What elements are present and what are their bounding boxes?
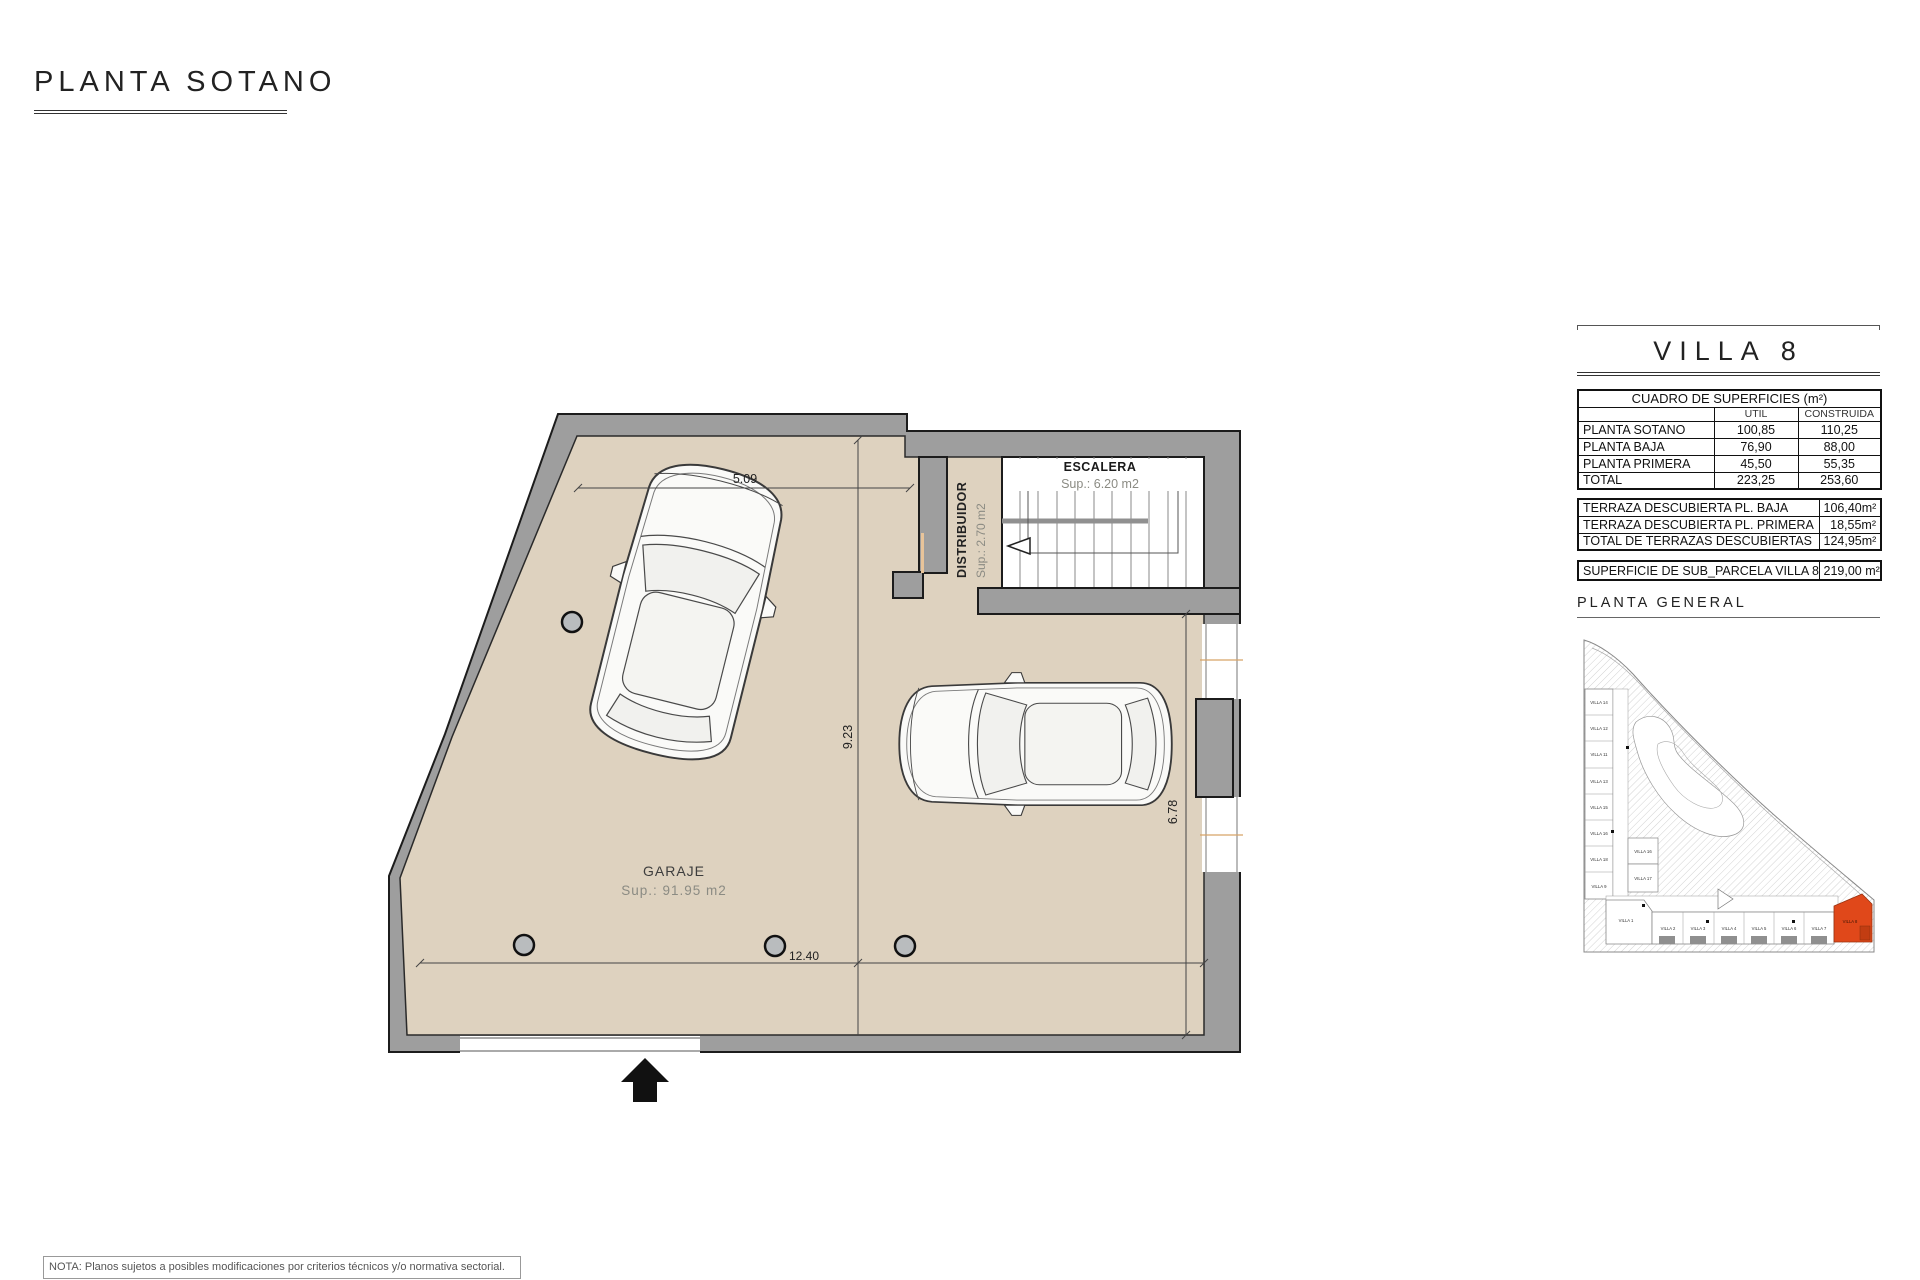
svg-text:VILLA 14: VILLA 14 [1590,700,1608,705]
left-villa-column: VILLA 14 VILLA 12 VILLA 11 VILLA 13 VILL… [1585,689,1628,899]
table-row: SUPERFICIE DE SUB_PARCELA VILLA 8 219,00… [1578,561,1881,580]
middle-villa-column: VILLA 16 VILLA 17 [1628,838,1658,892]
distribuidor-wall-stub [893,572,923,598]
svg-text:VILLA 5: VILLA 5 [1752,926,1767,931]
surfaces-table-title: CUADRO DE SUPERFICIES (m²) [1578,390,1881,407]
door-leaf [921,533,924,573]
distribuidor-area: Sup.: 2.70 m2 [974,503,988,578]
svg-text:VILLA 1: VILLA 1 [1619,918,1634,923]
drawing-sheet: PLANTA SOTANO [0,0,1920,1280]
bottom-villa-row: VILLA 1 VILLA 2 VILLA 3 VILLA 4 VILLA 5 … [1606,889,1838,944]
dim-left: 9.23 [841,725,855,749]
svg-text:VILLA 7: VILLA 7 [1812,926,1827,931]
svg-text:VILLA 11: VILLA 11 [1590,752,1608,757]
svg-text:VILLA 2: VILLA 2 [1661,926,1676,931]
table-row: PLANTA PRIMERA 45,50 55,35 [1578,455,1881,472]
table-row: TERRAZA DESCUBIERTA PL. BAJA 106,40m² [1578,499,1881,516]
table-row: TERRAZA DESCUBIERTA PL. PRIMERA 18,55m² [1578,516,1881,533]
window-pier [1196,699,1233,797]
svg-text:VILLA 12: VILLA 12 [1590,726,1608,731]
garaje-label: GARAJE [643,863,705,879]
surfaces-table: CUADRO DE SUPERFICIES (m²) UTIL CONSTRUI… [1577,389,1882,490]
parcel-table: SUPERFICIE DE SUB_PARCELA VILLA 8 219,00… [1577,560,1882,581]
car-2 [899,673,1171,816]
dim-top: 5.09 [733,472,757,486]
garaje-area: Sup.: 91.95 m2 [621,883,727,898]
title-block-panel: VILLA 8 CUADRO DE SUPERFICIES (m²) UTIL … [1577,325,1880,618]
panel-bracket-line [1577,325,1880,330]
svg-text:VILLA 16: VILLA 16 [1590,831,1608,836]
dim-bottom: 12.40 [789,949,819,963]
svg-text:VILLA 3: VILLA 3 [1691,926,1706,931]
col-construida: CONSTRUIDA [1798,407,1881,421]
escalera-label: ESCALERA [1064,460,1137,474]
table-row: TOTAL DE TERRAZAS DESCUBIERTAS 124,95m² [1578,533,1881,550]
stair-bottom-wall [978,588,1240,614]
svg-text:VILLA 17: VILLA 17 [1634,876,1652,881]
entrance-arrow [621,1058,669,1102]
table-row: PLANTA BAJA 76,90 88,00 [1578,438,1881,455]
planta-general-title: PLANTA GENERAL [1577,595,1880,618]
disclaimer-note: NOTA: Planos sujetos a posibles modifica… [43,1256,521,1279]
svg-text:VILLA 18: VILLA 18 [1590,857,1608,862]
col-util: UTIL [1714,407,1798,421]
table-row: PLANTA SOTANO 100,85 110,25 [1578,421,1881,438]
table-row: TOTAL 223,25 253,60 [1578,472,1881,489]
svg-text:VILLA 13: VILLA 13 [1590,779,1608,784]
table-header-row: UTIL CONSTRUIDA [1578,407,1881,421]
escalera-area: Sup.: 6.20 m2 [1061,477,1139,491]
svg-text:VILLA 4: VILLA 4 [1722,926,1737,931]
dim-right: 6.78 [1166,800,1180,824]
svg-text:VILLA 9: VILLA 9 [1591,884,1607,889]
terraces-table: TERRAZA DESCUBIERTA PL. BAJA 106,40m² TE… [1577,498,1882,551]
distribuidor-label: DISTRIBUIDOR [955,482,969,578]
svg-text:VILLA 16: VILLA 16 [1634,849,1652,854]
svg-text:VILLA 6: VILLA 6 [1782,926,1797,931]
svg-text:VILLA 15: VILLA 15 [1590,805,1608,810]
svg-text:VILLA 8: VILLA 8 [1843,919,1858,924]
site-plan: VILLA 14 VILLA 12 VILLA 11 VILLA 13 VILL… [1578,634,1878,964]
villa-title-underline [1577,372,1880,376]
garage-door-opening [460,1036,700,1053]
villa-title: VILLA 8 [1577,336,1880,367]
